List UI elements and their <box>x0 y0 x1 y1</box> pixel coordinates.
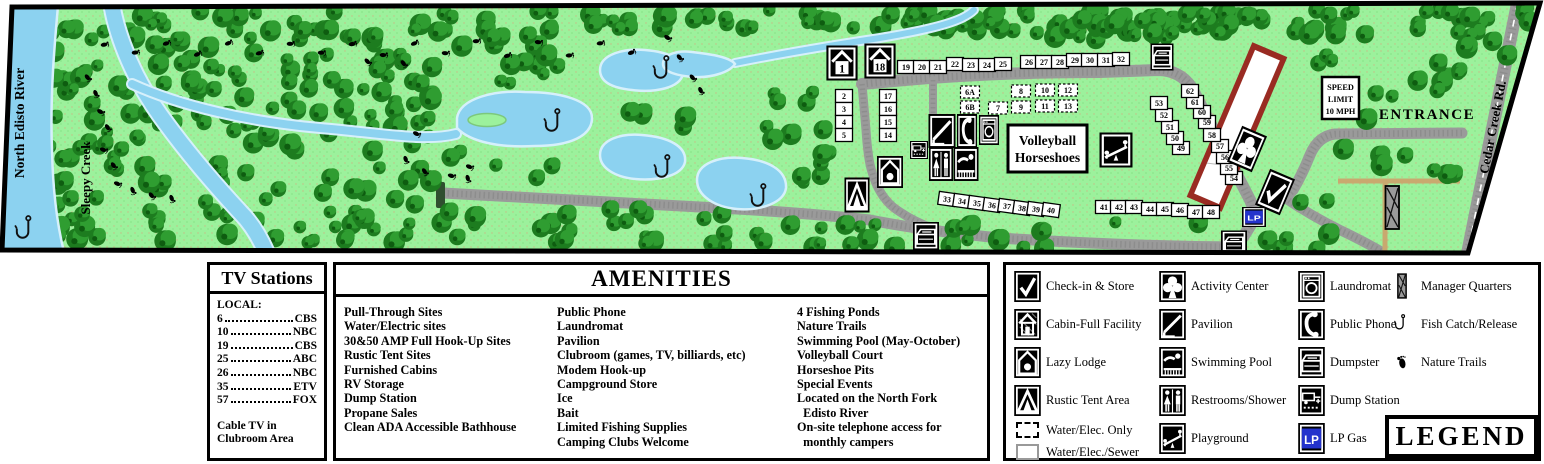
amenity-item: Clean ADA Accessible Bathhouse <box>344 420 516 434</box>
svg-text:50: 50 <box>1171 134 1179 143</box>
svg-text:55: 55 <box>1225 164 1233 173</box>
svg-text:49: 49 <box>1177 144 1185 153</box>
campsite-51: 51 <box>1162 121 1179 134</box>
svg-text:36: 36 <box>987 200 996 210</box>
amenity-item: Water/Electric sites <box>344 319 516 333</box>
svg-text:54: 54 <box>1230 174 1238 183</box>
tv-stations-panel: TV Stations LOCAL: 6CBS10NBC19CBS25ABC26… <box>207 262 327 461</box>
campsite-24: 24 <box>979 59 996 72</box>
amenity-item: Horseshoe Pits <box>797 363 960 377</box>
svg-text:10: 10 <box>1041 86 1049 95</box>
tv-station-row: 6CBS <box>217 313 317 327</box>
campsite-46: 46 <box>1172 204 1189 217</box>
legend-column-4: Manager Quarters Fish Catch/Release Natu… <box>1387 267 1517 381</box>
svg-text:5: 5 <box>842 131 846 140</box>
campsite-6A: 6A <box>961 86 980 98</box>
svg-text:8: 8 <box>1019 87 1023 96</box>
svg-text:60: 60 <box>1198 108 1206 117</box>
legend-item-dumpster: Dumpster <box>1296 343 1400 381</box>
campsite-40: 40 <box>1042 202 1061 217</box>
volleyball-sign: Volleyball Horseshoes <box>1008 125 1087 172</box>
amenity-item: Pavilion <box>557 334 746 348</box>
amenity-item: Modem Hook-up <box>557 363 746 377</box>
checkin-icon <box>1012 271 1042 302</box>
amenity-item: Clubroom (games, TV, billiards, etc) <box>557 348 746 362</box>
amenities-column-3: 4 Fishing PondsNature TrailsSwimming Poo… <box>797 305 960 449</box>
svg-text:58: 58 <box>1208 131 1216 140</box>
dumpstation-icon <box>1296 385 1326 416</box>
lp-icon: LP <box>1296 423 1326 454</box>
pavilion-icon <box>1157 309 1187 340</box>
amenity-item: Nature Trails <box>797 319 960 333</box>
amenities-title: AMENITIES <box>336 265 987 297</box>
svg-text:45: 45 <box>1161 205 1169 214</box>
campsite-2: 2 <box>836 90 853 103</box>
campsite-53: 53 <box>1151 97 1168 110</box>
tv-station-row: 26NBC <box>217 367 317 381</box>
svg-text:SPEED: SPEED <box>1327 83 1354 92</box>
tent-icon <box>1012 385 1042 416</box>
tv-station-list: 6CBS10NBC19CBS25ABC26NBC35ETV57FOX <box>217 313 317 408</box>
amenity-item: Located on the North Fork <box>797 391 960 405</box>
lodge-map-icon <box>878 157 902 187</box>
legend-item-dumpstation: Dump Station <box>1296 381 1400 419</box>
pool-icon <box>1157 347 1187 378</box>
svg-text:35: 35 <box>972 198 981 208</box>
legend-item-laundry: Laundromat <box>1296 267 1400 305</box>
campsite-30: 30 <box>1082 54 1099 67</box>
svg-text:25: 25 <box>999 60 1007 69</box>
restroom-icon <box>1157 385 1187 416</box>
amenity-item: Rustic Tent Sites <box>344 348 516 362</box>
campsite-12: 12 <box>1059 84 1078 96</box>
campsite-21: 21 <box>930 61 947 74</box>
legend-item-lodge: Lazy Lodge <box>1012 343 1141 381</box>
svg-text:1: 1 <box>839 64 845 76</box>
legend-label: Dump Station <box>1330 393 1400 408</box>
svg-text:40: 40 <box>1046 205 1055 215</box>
campsite-13: 13 <box>1059 100 1078 112</box>
campsite-43: 43 <box>1126 201 1143 214</box>
campsite-25: 25 <box>995 58 1012 71</box>
tv-channel: 6 <box>217 313 223 327</box>
svg-text:Volleyball: Volleyball <box>1019 133 1077 148</box>
campsite-62: 62 <box>1182 85 1199 98</box>
amenity-item: 4 Fishing Ponds <box>797 305 960 319</box>
campsite-22: 22 <box>947 58 964 71</box>
legend-label: Playground <box>1191 431 1249 446</box>
svg-text:62: 62 <box>1186 87 1194 96</box>
tent-map-icon <box>845 179 868 212</box>
tv-station-row: 25ABC <box>217 353 317 367</box>
tv-network: CBS <box>295 313 317 327</box>
legend-label: Lazy Lodge <box>1046 355 1106 370</box>
legend-label: Pavilion <box>1191 317 1233 332</box>
campsite-11: 11 <box>1036 100 1055 112</box>
amenity-item: RV Storage <box>344 377 516 391</box>
svg-text:21: 21 <box>934 63 942 72</box>
tv-station-row: 35ETV <box>217 381 317 395</box>
legend-label: Check-in & Store <box>1046 279 1134 294</box>
campsite-32: 32 <box>1113 53 1130 66</box>
playground-icon <box>1157 423 1187 454</box>
campsite-27: 27 <box>1036 56 1053 69</box>
campsite-14: 14 <box>880 129 897 142</box>
dumpster-map-icon <box>914 223 938 249</box>
tv-network: CBS <box>295 340 317 354</box>
svg-text:61: 61 <box>1191 98 1199 107</box>
svg-text:19: 19 <box>902 63 910 72</box>
campsite-7: 7 <box>989 102 1008 114</box>
svg-text:14: 14 <box>884 131 892 140</box>
amenities-column-2: Public PhoneLaundromatPavilionClubroom (… <box>557 305 746 449</box>
foot-icon <box>1387 347 1417 377</box>
dumpstation-map-icon <box>911 142 928 159</box>
tv-station-row: 57FOX <box>217 394 317 408</box>
legend-item-tent: Rustic Tent Area <box>1012 381 1141 419</box>
laundry-icon <box>1296 271 1326 302</box>
svg-text:27: 27 <box>1040 58 1048 67</box>
tv-station-row: 19CBS <box>217 340 317 354</box>
campsite-8: 8 <box>1012 85 1031 97</box>
svg-text:Horseshoes: Horseshoes <box>1015 150 1080 165</box>
campsite-19: 19 <box>898 61 915 74</box>
hook-icon <box>1387 308 1417 340</box>
svg-text:26: 26 <box>1025 58 1033 67</box>
speed-limit-sign: SPEEDLIMIT10 MPH <box>1322 77 1359 119</box>
river-label: North Edisto River <box>12 68 27 178</box>
svg-text:12: 12 <box>1064 86 1072 95</box>
campsite-58: 58 <box>1204 129 1221 142</box>
svg-text:32: 32 <box>1117 55 1125 64</box>
phone-icon <box>1296 309 1326 340</box>
tv-network: NBC <box>293 367 317 381</box>
amenities-column-1: Pull-Through SitesWater/Electric sites30… <box>344 305 516 435</box>
campsite-17: 17 <box>880 90 897 103</box>
svg-text:LP: LP <box>1247 214 1260 222</box>
amenity-item: Camping Clubs Welcome <box>557 435 746 449</box>
svg-text:17: 17 <box>884 92 892 101</box>
legend-label: Cabin-Full Facility <box>1046 317 1141 332</box>
legend-item-hook: Fish Catch/Release <box>1387 305 1517 343</box>
laundry-map-icon <box>980 116 999 144</box>
svg-text:2: 2 <box>842 92 846 101</box>
lp-map-icon: LP <box>1243 208 1265 227</box>
cabin-18-icon: 18 <box>865 45 894 78</box>
legend-label: Dumpster <box>1330 355 1379 370</box>
playground-map-icon <box>1101 134 1132 167</box>
campground-map-page: 19 20 21 22 23 24 25 26 27 28 29 30 31 <box>0 0 1544 464</box>
amenity-item: Public Phone <box>557 305 746 319</box>
tv-channel: 10 <box>217 326 229 340</box>
tv-network: NBC <box>293 326 317 340</box>
svg-text:10 MPH: 10 MPH <box>1326 107 1356 116</box>
legend-label: Rustic Tent Area <box>1046 393 1130 408</box>
svg-text:53: 53 <box>1155 99 1163 108</box>
svg-text:38: 38 <box>1017 203 1026 213</box>
legend-label: Manager Quarters <box>1421 279 1512 294</box>
legend-item-manager: Manager Quarters <box>1387 267 1517 305</box>
legend-panel: Check-in & Store Cabin-Full Facility Laz… <box>1003 262 1541 461</box>
entrance-label: ENTRANCE <box>1379 107 1475 123</box>
svg-text:16: 16 <box>884 105 892 114</box>
amenity-item: Dump Station <box>344 391 516 405</box>
svg-text:33: 33 <box>942 194 951 204</box>
legend-label: Nature Trails <box>1421 355 1487 370</box>
svg-text:29: 29 <box>1071 56 1079 65</box>
svg-text:11: 11 <box>1041 102 1049 111</box>
svg-text:13: 13 <box>1064 102 1072 111</box>
amenity-item: Laundromat <box>557 319 746 333</box>
legend-label: Swimming Pool <box>1191 355 1272 370</box>
svg-text:34: 34 <box>957 196 966 206</box>
tv-footer: Cable TV in Clubroom Area <box>217 420 317 447</box>
legend-item-restroom: Restrooms/Shower <box>1157 381 1286 419</box>
amenity-item: Propane Sales <box>344 406 516 420</box>
campground-map: 19 20 21 22 23 24 25 26 27 28 29 30 31 <box>0 0 1544 258</box>
legend-item-cabin: Cabin-Full Facility <box>1012 305 1141 343</box>
svg-text:42: 42 <box>1115 203 1123 212</box>
svg-text:23: 23 <box>967 61 975 70</box>
campsite-20: 20 <box>914 61 931 74</box>
legend-item-checkin: Check-in & Store <box>1012 267 1141 305</box>
svg-text:52: 52 <box>1160 111 1168 120</box>
svg-text:9: 9 <box>1019 103 1023 112</box>
campsite-15: 15 <box>880 116 897 129</box>
cabin-icon <box>1012 309 1042 340</box>
legend-item-activity: Activity Center <box>1157 267 1286 305</box>
campsite-10: 10 <box>1036 84 1055 96</box>
tv-channel: 26 <box>217 367 229 381</box>
svg-text:47: 47 <box>1192 208 1200 217</box>
svg-text:41: 41 <box>1100 203 1108 212</box>
solidbox-icon <box>1012 444 1042 460</box>
amenities-panel: AMENITIES Pull-Through SitesWater/Electr… <box>333 262 990 461</box>
legend-column-2: Activity Center Pavilion Swimming Pool R… <box>1157 267 1286 457</box>
tv-station-row: 10NBC <box>217 326 317 340</box>
restroom-map-icon <box>930 148 952 180</box>
legend-label: Water/Elec. Only <box>1046 423 1132 438</box>
amenity-item: Bait <box>557 406 746 420</box>
svg-text:18: 18 <box>875 63 885 74</box>
lodge-icon <box>1012 347 1042 378</box>
legend-item-solidbox: Water/Elec./Sewer <box>1012 441 1141 463</box>
legend-label: Laundromat <box>1330 279 1391 294</box>
svg-text:31: 31 <box>1102 56 1110 65</box>
svg-text:24: 24 <box>983 61 991 70</box>
campsite-16: 16 <box>880 103 897 116</box>
manager-quarters <box>1386 186 1400 229</box>
svg-text:6A: 6A <box>965 88 975 97</box>
amenity-item: Campground Store <box>557 377 746 391</box>
legend-item-playground: Playground <box>1157 419 1286 457</box>
svg-text:48: 48 <box>1207 208 1215 217</box>
amenity-item: Swimming Pool (May-October) <box>797 334 960 348</box>
tv-network: FOX <box>293 394 317 408</box>
legend-label: Activity Center <box>1191 279 1268 294</box>
campsite-4: 4 <box>836 116 853 129</box>
tv-channel: 25 <box>217 353 229 367</box>
tv-local-subtitle: LOCAL: <box>217 299 317 313</box>
legend-item-foot: Nature Trails <box>1387 343 1517 381</box>
legend-label: Water/Elec./Sewer <box>1046 445 1139 460</box>
svg-text:22: 22 <box>951 60 959 69</box>
campsite-9: 9 <box>1012 101 1031 113</box>
tv-stations-title: TV Stations <box>210 265 324 294</box>
campsite-6B: 6B <box>961 101 980 113</box>
phone-map-icon <box>958 115 977 147</box>
amenity-item: Pull-Through Sites <box>344 305 516 319</box>
manager-icon <box>1387 266 1417 306</box>
tv-network: ETV <box>293 381 317 395</box>
amenity-item: Limited Fishing Supplies <box>557 420 746 434</box>
legend-column-1: Check-in & Store Cabin-Full Facility Laz… <box>1012 267 1141 463</box>
tv-channel: 57 <box>217 394 229 408</box>
svg-text:4: 4 <box>842 118 846 127</box>
svg-text:57: 57 <box>1216 142 1224 151</box>
svg-text:15: 15 <box>884 118 892 127</box>
svg-text:37: 37 <box>1002 201 1011 211</box>
pavilion-map-icon <box>929 115 954 147</box>
legend-label: Restrooms/Shower <box>1191 393 1286 408</box>
activity-icon <box>1157 271 1187 302</box>
svg-text:44: 44 <box>1146 205 1154 214</box>
campsite-3: 3 <box>836 103 853 116</box>
legend-item-phone: Public Phone <box>1296 305 1400 343</box>
amenity-item: monthly campers <box>797 435 960 449</box>
tv-stations-body: LOCAL: 6CBS10NBC19CBS25ABC26NBC35ETV57FO… <box>210 294 324 452</box>
cabin-1-icon: 1 <box>827 47 856 80</box>
tv-channel: 35 <box>217 381 229 395</box>
tv-channel: 19 <box>217 340 229 354</box>
amenity-item: Volleyball Court <box>797 348 960 362</box>
legend-label: Fish Catch/Release <box>1421 317 1517 332</box>
campsite-23: 23 <box>963 59 980 72</box>
svg-text:28: 28 <box>1056 58 1064 67</box>
svg-text:3: 3 <box>842 105 846 114</box>
campsite-5: 5 <box>836 129 853 142</box>
legend-item-pool: Swimming Pool <box>1157 343 1286 381</box>
amenity-item: 30&50 AMP Full Hook-Up Sites <box>344 334 516 348</box>
dumpster-map-icon <box>1151 44 1172 69</box>
svg-text:7: 7 <box>996 104 1000 113</box>
dumpster-icon <box>1296 347 1326 378</box>
amenity-item: On-site telephone access for <box>797 420 960 434</box>
tv-network: ABC <box>293 353 317 367</box>
amenity-item: Special Events <box>797 377 960 391</box>
creek-label: Sleepy Creek <box>78 141 93 215</box>
campsite-48: 48 <box>1203 206 1220 219</box>
legend-item-dashedbox: Water/Elec. Only <box>1012 419 1141 441</box>
amenity-item: Edisto River <box>797 406 960 420</box>
amenity-item: Ice <box>557 391 746 405</box>
svg-text:43: 43 <box>1130 203 1138 212</box>
legend-title: LEGEND <box>1385 415 1538 458</box>
legend-label: LP Gas <box>1330 431 1367 446</box>
svg-text:20: 20 <box>918 63 926 72</box>
svg-text:59: 59 <box>1203 118 1211 127</box>
svg-text:LP: LP <box>1304 433 1319 446</box>
legend-item-pavilion: Pavilion <box>1157 305 1286 343</box>
svg-text:30: 30 <box>1086 56 1094 65</box>
dashedbox-icon <box>1012 422 1042 438</box>
svg-text:6B: 6B <box>965 103 975 112</box>
svg-text:LIMIT: LIMIT <box>1328 95 1354 104</box>
amenity-item: Furnished Cabins <box>344 363 516 377</box>
pool-map-icon <box>954 148 977 180</box>
svg-text:39: 39 <box>1031 204 1040 214</box>
svg-text:46: 46 <box>1176 206 1184 215</box>
svg-text:51: 51 <box>1166 123 1174 132</box>
campsite-52: 52 <box>1156 109 1173 122</box>
